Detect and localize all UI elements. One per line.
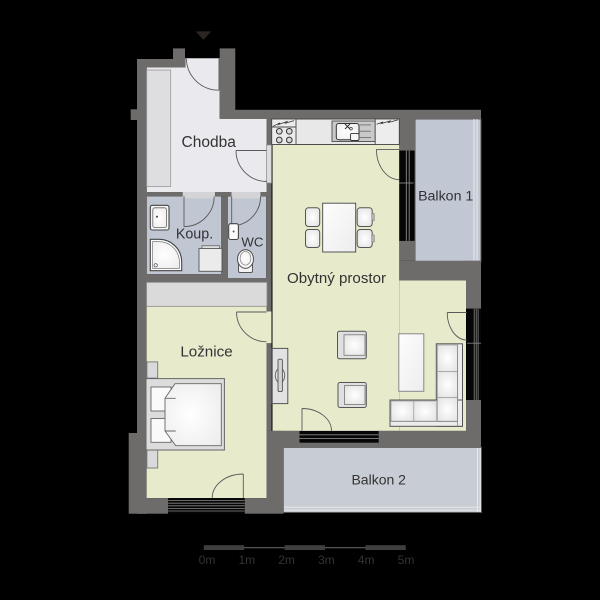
svg-text:Obytný prostor: Obytný prostor xyxy=(287,270,386,287)
svg-text:1m: 1m xyxy=(238,553,255,567)
svg-text:5m: 5m xyxy=(398,553,415,567)
svg-text:4m: 4m xyxy=(358,553,375,567)
svg-text:Chodba: Chodba xyxy=(182,134,237,151)
svg-text:0m: 0m xyxy=(199,553,216,567)
svg-text:Koup.: Koup. xyxy=(176,227,213,243)
svg-text:WC: WC xyxy=(241,235,263,250)
svg-text:Balkon 1: Balkon 1 xyxy=(418,189,473,205)
svg-text:Ložnice: Ložnice xyxy=(180,344,232,361)
svg-text:2m: 2m xyxy=(278,553,295,567)
svg-text:Balkon 2: Balkon 2 xyxy=(351,472,406,488)
svg-text:3m: 3m xyxy=(318,553,335,567)
